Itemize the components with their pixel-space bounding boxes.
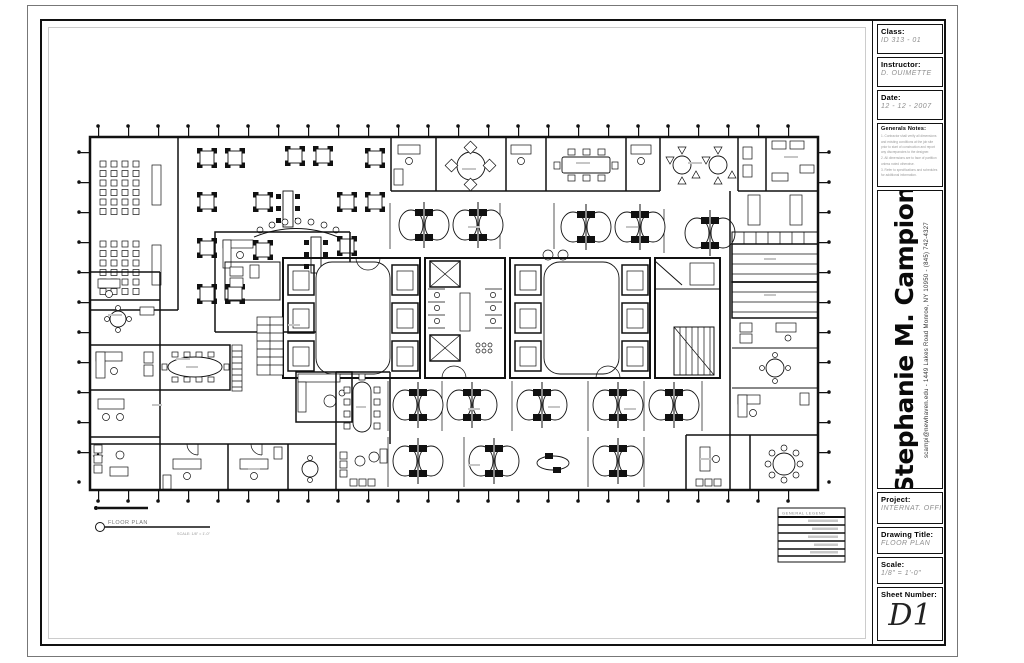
collaboration-area (666, 147, 736, 184)
callout-scale: SCALE: 1/8" = 1'-0" (177, 532, 211, 536)
class-box: Class: ID 313 - 01 (877, 24, 943, 54)
date-box: Date: 12 - 12 - 2007 (877, 90, 943, 120)
callout-title: FLOOR PLAN (108, 520, 148, 526)
designer-name-box: Stephanie M. Campion scampi@newhaven.edu… (877, 190, 943, 489)
legend-table: GENERAL LEGEND (778, 508, 845, 562)
designer-name: Stephanie M. Campion (890, 190, 919, 489)
date-value: 12 - 12 - 2007 (881, 102, 939, 112)
instructor-box: Instructor: D. OUIMETTE (877, 57, 943, 87)
drawing-title-label: Drawing Title: (881, 530, 939, 539)
workstation-pods-row2 (388, 437, 644, 487)
general-note: 2. All dimensions are to face of partiti… (881, 156, 939, 166)
core-double-door-left (442, 366, 466, 378)
workstation-pods-middle (390, 202, 735, 260)
drawing-sheet: GENERAL LEGEND FLOOR PLAN SCALE: 1/8" = … (0, 0, 1024, 663)
instructor-label: Instructor: (881, 60, 939, 69)
drawing-title-value: FLOOR PLAN (881, 539, 939, 549)
drawing-title-box: Drawing Title: FLOOR PLAN (877, 527, 943, 554)
meeting-room-table (554, 149, 618, 181)
bottom-right-office (696, 447, 721, 486)
left-office-column (90, 272, 160, 490)
general-note: 1. Contractor shall verify all dimension… (881, 134, 939, 155)
date-label: Date: (881, 93, 939, 102)
coat-closet (232, 345, 242, 391)
class-label: Class: (881, 27, 939, 36)
designer-contact: scampi@newhaven.edu - 1449 Lakes Road Mo… (924, 221, 930, 457)
sheet-number-value: D1 (881, 599, 939, 632)
drawing-field-margin (49, 28, 866, 639)
core-restrooms (425, 258, 505, 378)
instructor-value: D. OUIMETTE (881, 69, 939, 79)
floor-plan-drawing: GENERAL LEGEND FLOOR PLAN SCALE: 1/8" = … (48, 27, 866, 639)
plan-callout: FLOOR PLAN SCALE: 1/8" = 1'-0" (96, 520, 211, 536)
lounge (340, 449, 387, 486)
scale-value: 1/8" = 1'-0" (881, 569, 939, 579)
core-elevators-left (283, 258, 420, 378)
project-label: Project: (881, 495, 939, 504)
scale-bar (94, 506, 148, 510)
class-value: ID 313 - 01 (881, 36, 939, 46)
legend-title: GENERAL LEGEND (782, 511, 826, 516)
project-box: Project: INTERNAT. OFFICE (877, 492, 943, 524)
general-notes-label: Generals Notes: (881, 126, 939, 133)
workstation-pods-row1 (388, 381, 702, 431)
project-value: INTERNAT. OFFICE (881, 504, 939, 514)
scale-box: Scale: 1/8" = 1'-0" (877, 557, 943, 584)
core-elevators-right (510, 258, 650, 378)
sheet-number-box: Sheet Number: D1 (877, 587, 943, 641)
general-notes-box: Generals Notes: 1. Contractor shall veri… (877, 123, 943, 187)
conference-round (765, 445, 803, 483)
pantry-kitchen (296, 372, 352, 422)
core-stair-right (655, 258, 720, 378)
top-office-row (391, 137, 818, 191)
core-stair-left (257, 317, 283, 375)
storage-rooms (732, 232, 818, 318)
conference-round-table (445, 141, 496, 191)
tele-data-room (772, 141, 814, 181)
general-note: 3. Refer to specifications and schedules… (881, 168, 939, 178)
title-block: Class: ID 313 - 01 Instructor: D. OUIMET… (872, 21, 946, 644)
conference-oval (160, 345, 242, 391)
scale-label: Scale: (881, 560, 939, 569)
building-perimeter (90, 137, 818, 490)
